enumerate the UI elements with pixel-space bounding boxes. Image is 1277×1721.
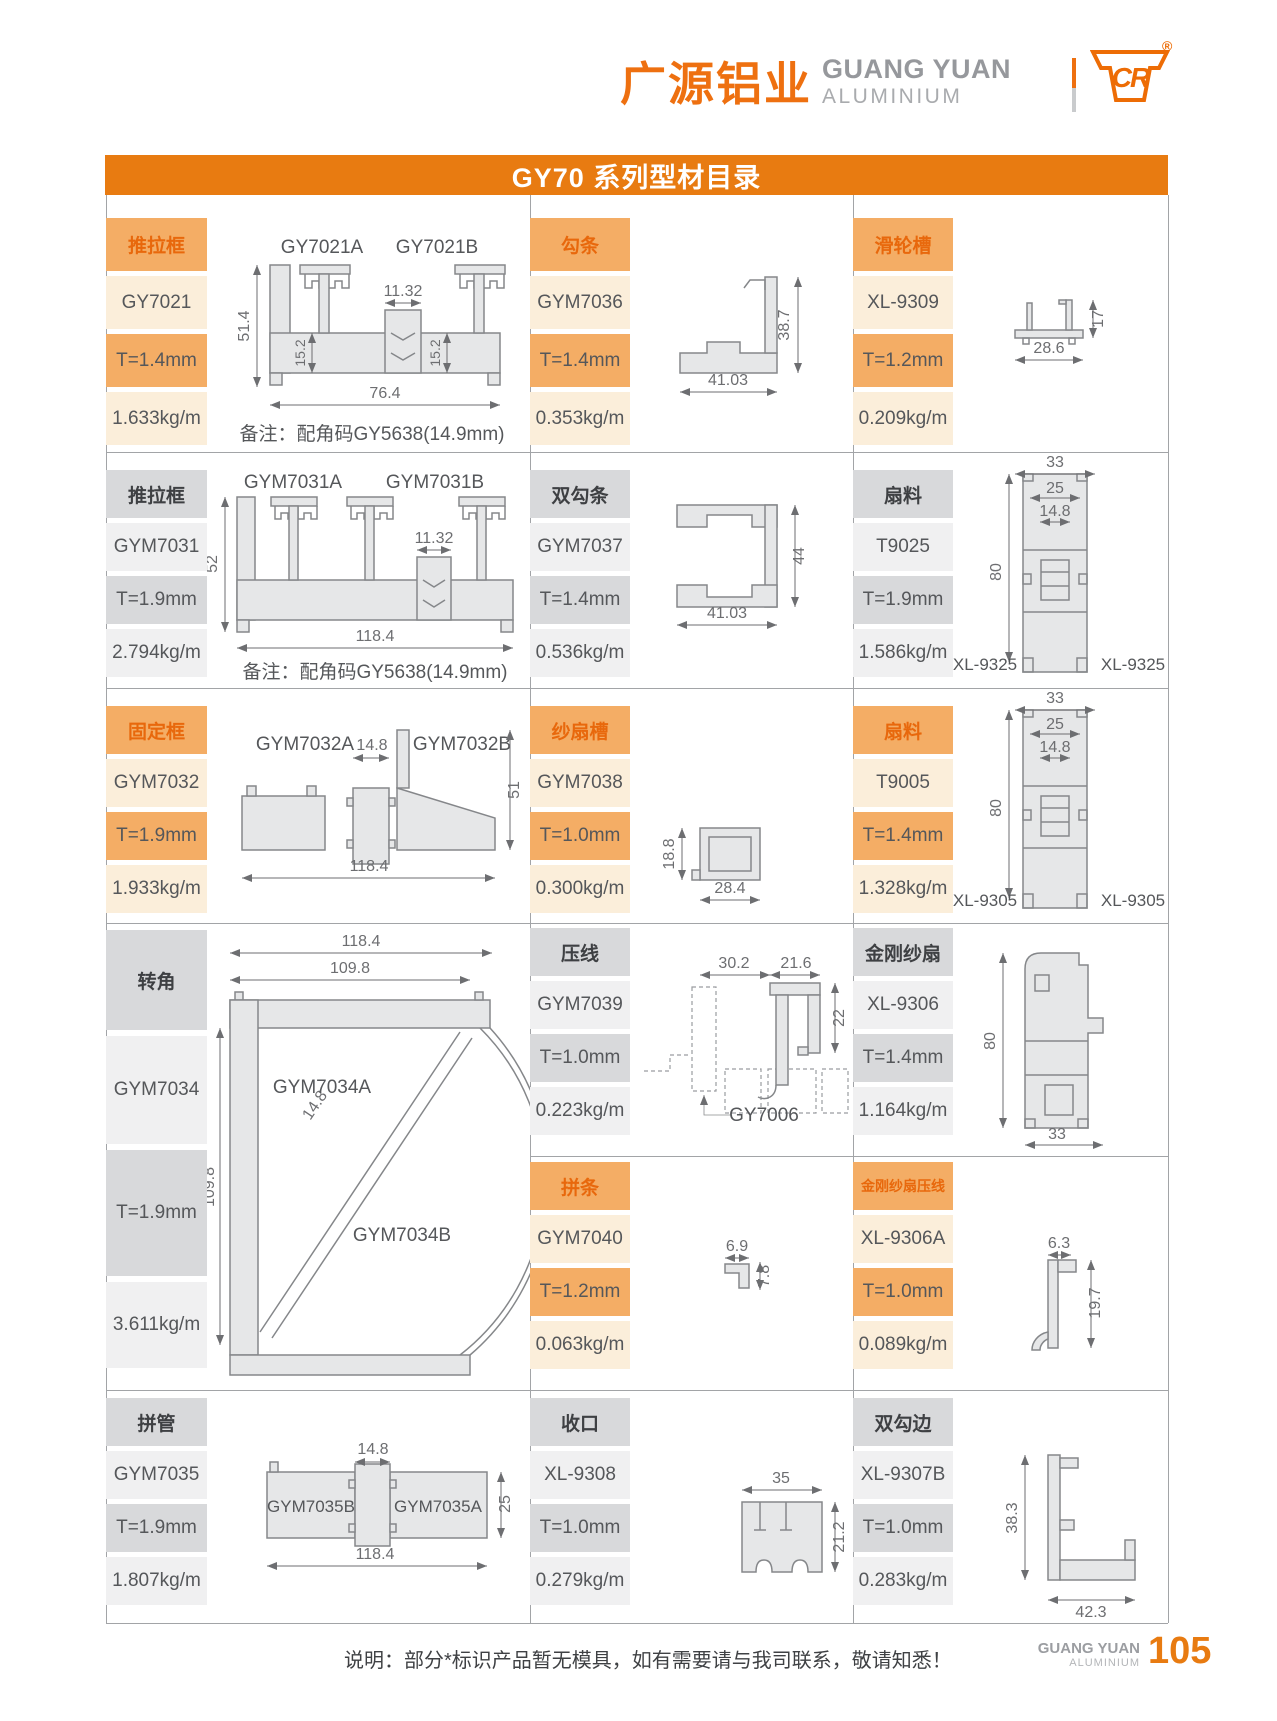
profile-shape (680, 277, 777, 373)
weight-cell: 0.353kg/m (530, 392, 630, 445)
profile-shape (758, 983, 820, 1099)
dim-text: 109.8 (207, 1167, 218, 1207)
product-block-gym7040: 拼条 GYM7040 T=1.2mm 0.063kg/m (530, 1162, 630, 1369)
footer-brand-line2: ALUMINIUM (1010, 1658, 1140, 1669)
profile-shape (230, 992, 530, 1375)
brand-divider (1072, 58, 1076, 112)
model-cell: GYM7040 (530, 1215, 630, 1263)
model-cell: GYM7037 (530, 523, 630, 571)
dim-text: 21.2 (831, 1521, 848, 1552)
dim-text: 7.8 (756, 1265, 773, 1287)
thickness-cell: T=1.2mm (530, 1268, 630, 1316)
weight-cell: 0.283kg/m (853, 1557, 953, 1605)
profile-shape (1032, 1260, 1076, 1350)
dim-text: 28.6 (1033, 340, 1064, 357)
product-block-gym7036: 勾条 GYM7036 T=1.4mm 0.353kg/m (530, 218, 630, 445)
drawing-t9005: 33 25 14.8 80 XL-9305 XL-9305 (953, 688, 1168, 923)
side-profile-label: XL-9325 (1101, 655, 1165, 674)
product-block-xl9306a: 金刚纱扇压线 XL-9306A T=1.0mm 0.089kg/m (853, 1162, 953, 1369)
model-cell: XL-9307B (853, 1451, 953, 1499)
weight-cell: 1.164kg/m (853, 1087, 953, 1135)
dim-text: 118.4 (356, 628, 395, 645)
category-cell: 双勾边 (853, 1398, 953, 1446)
profile-shape (1025, 953, 1103, 1128)
category-cell: 纱扇槽 (530, 706, 630, 754)
drawing-gym7040: 6.9 7.8 (630, 1156, 853, 1390)
drawing-note: 备注：配角码GY5638(14.9mm) (239, 423, 504, 445)
dim-text: 14.8 (356, 737, 387, 754)
drawing-gym7039: 30.2 21.6 22 GY7006 (630, 923, 853, 1156)
thickness-cell: T=1.0mm (530, 1034, 630, 1082)
category-cell: 勾条 (530, 218, 630, 271)
reference-label: GY7006 (729, 1105, 799, 1126)
profile-shape (1015, 300, 1083, 344)
product-block-gym7032: 固定框 GYM7032 T=1.9mm 1.933kg/m (106, 706, 207, 913)
model-cell: GYM7034 (106, 1036, 207, 1144)
product-block-gym7037: 双勾条 GYM7037 T=1.4mm 0.536kg/m (530, 470, 630, 677)
grid-line (1168, 195, 1169, 1623)
thickness-cell: T=1.0mm (530, 812, 630, 860)
dim-text: 25 (1046, 716, 1064, 733)
product-block-gym7038: 纱扇槽 GYM7038 T=1.0mm 0.300kg/m (530, 706, 630, 913)
profile-label: GYM7032B (413, 734, 511, 755)
dim-text: 11.32 (384, 283, 423, 300)
category-cell: 收口 (530, 1398, 630, 1446)
product-block-xl9306: 金刚纱扇 XL-9306 T=1.4mm 1.164kg/m (853, 928, 953, 1135)
weight-cell: 1.586kg/m (853, 629, 953, 677)
page-number: 105 (1148, 1630, 1211, 1673)
dim-text: 6.9 (726, 1238, 748, 1255)
thickness-cell: T=1.9mm (106, 812, 207, 860)
weight-cell: 0.279kg/m (530, 1557, 630, 1605)
weight-cell: 0.536kg/m (530, 629, 630, 677)
dim-text: 14.8 (1039, 503, 1070, 520)
profile-shape (237, 497, 513, 632)
model-cell: XL-9308 (530, 1451, 630, 1499)
product-block-t9005: 扇料 T9005 T=1.4mm 1.328kg/m (853, 706, 953, 913)
thickness-cell: T=1.4mm (530, 334, 630, 387)
dim-text: 80 (982, 1032, 999, 1050)
drawing-xl9307b: 38.3 42.3 (953, 1390, 1168, 1623)
thickness-cell: T=1.9mm (106, 1504, 207, 1552)
side-profile-label: XL-9305 (1101, 891, 1165, 910)
weight-cell: 1.933kg/m (106, 865, 207, 913)
brand-chinese-name: 广源铝业 (620, 48, 812, 114)
weight-cell: 0.209kg/m (853, 392, 953, 445)
dim-text: 118.4 (356, 1546, 395, 1563)
product-block-gym7031: 推拉框 GYM7031 T=1.9mm 2.794kg/m (106, 470, 207, 677)
dim-text: 11.32 (415, 530, 454, 547)
product-block-gym7035: 拼管 GYM7035 T=1.9mm 1.807kg/m (106, 1398, 207, 1605)
weight-cell: 0.063kg/m (530, 1321, 630, 1369)
side-profile-label: XL-9325 (953, 655, 1017, 674)
model-cell: GYM7035 (106, 1451, 207, 1499)
dim-text: 33 (1046, 690, 1064, 707)
cr-logo-text: CR (1112, 62, 1151, 93)
dim-text: 14.8 (1039, 739, 1070, 756)
product-block-xl9309: 滑轮槽 XL-9309 T=1.2mm 0.209kg/m (853, 218, 953, 445)
cr-logo-icon: CR (1090, 46, 1170, 106)
product-block-t9025: 扇料 T9025 T=1.9mm 1.586kg/m (853, 470, 953, 677)
drawing-gym7035: 14.8 GYM7035B GYM7035A 25 118.4 (207, 1390, 530, 1623)
dim-text: 52 (207, 555, 221, 573)
dim-text: 28.4 (714, 880, 745, 897)
profile-label: GYM7035B (267, 1497, 355, 1516)
dim-text: 25 (497, 1495, 514, 1513)
side-profile-label: XL-9305 (953, 891, 1017, 910)
dim-text: 51.4 (236, 310, 253, 341)
weight-cell: 0.223kg/m (530, 1087, 630, 1135)
grid-line (106, 1623, 1168, 1624)
category-cell: 金刚纱扇压线 (853, 1162, 953, 1210)
thickness-cell: T=1.0mm (530, 1504, 630, 1552)
weight-cell: 0.300kg/m (530, 865, 630, 913)
footer-brand: GUANG YUAN ALUMINIUM (1010, 1641, 1140, 1669)
profile-shape (1048, 1455, 1135, 1580)
category-cell: 扇料 (853, 706, 953, 754)
model-cell: XL-9309 (853, 276, 953, 329)
dim-text: 15.2 (292, 339, 308, 366)
dim-text: 35 (772, 1470, 790, 1487)
category-cell: 转角 (106, 930, 207, 1030)
dim-text: 17 (1090, 310, 1107, 328)
profile-label: GY7021B (396, 237, 478, 258)
brand-en-line1: GUANG YUAN (822, 56, 1011, 83)
dim-text: 15.2 (427, 339, 443, 366)
thickness-cell: T=1.9mm (853, 576, 953, 624)
dim-text: 41.03 (707, 605, 747, 622)
profile-label: GYM7034B (353, 1225, 451, 1246)
thickness-cell: T=1.4mm (106, 334, 207, 387)
category-cell: 拼条 (530, 1162, 630, 1210)
footer-note: 说明：部分*标识产品暂无模具，如有需要请与我司联系，敬请知悉！ (344, 1644, 952, 1673)
model-cell: GYM7038 (530, 759, 630, 807)
footer-brand-line1: GUANG YUAN (1010, 1641, 1140, 1656)
profile-label: GY7021A (281, 237, 364, 258)
dim-text: 44 (791, 547, 808, 565)
drawing-gym7036: 38.7 41.03 (630, 195, 853, 452)
category-cell: 固定框 (106, 706, 207, 754)
dim-text: 21.6 (780, 955, 811, 972)
profile-label: GYM7032A (256, 734, 355, 755)
drawing-gy7021: GY7021A GY7021B 51.4 11.32 15.2 15.2 76.… (207, 195, 530, 452)
dim-text: 19.7 (1087, 1287, 1104, 1318)
drawing-gym7032: GYM7032A 14.8 GYM7032B 51 118.4 (207, 688, 530, 923)
thickness-cell: T=1.4mm (530, 576, 630, 624)
series-title-bar: GY70 系列型材目录 (105, 155, 1168, 195)
model-cell: GY7021 (106, 276, 207, 329)
drawing-gym7037: 44 41.03 (630, 452, 853, 688)
category-cell: 扇料 (853, 470, 953, 518)
profile-shape (692, 828, 760, 880)
dim-text: 14.8 (357, 1441, 388, 1458)
drawing-t9025: 33 25 14.8 80 XL-9325 XL-9325 (953, 452, 1168, 688)
weight-cell: 1.807kg/m (106, 1557, 207, 1605)
weight-cell: 1.633kg/m (106, 392, 207, 445)
drawing-note: 备注：配角码GY5638(14.9mm) (242, 661, 507, 683)
brand-en-line2: ALUMINIUM (822, 86, 1011, 107)
profile-label: GYM7035A (394, 1497, 483, 1516)
dim-text: 33 (1048, 1126, 1066, 1143)
drawing-gym7034: 118.4 109.8 109.8 14.8 GYM7034A GYM7034B (207, 923, 530, 1390)
dim-text: 80 (988, 799, 1005, 817)
thickness-cell: T=1.9mm (106, 1150, 207, 1276)
profile-shape (677, 505, 777, 607)
dim-text: 76.4 (369, 385, 400, 402)
drawing-xl9308: 35 21.2 (630, 1390, 853, 1623)
thickness-cell: T=1.4mm (853, 1034, 953, 1082)
dim-text: 80 (988, 563, 1005, 581)
category-cell: 滑轮槽 (853, 218, 953, 271)
model-cell: XL-9306 (853, 981, 953, 1029)
dim-text: 118.4 (342, 933, 381, 950)
weight-cell: 1.328kg/m (853, 865, 953, 913)
dim-text: 51 (506, 781, 523, 799)
product-block-gym7034: 转角 GYM7034 T=1.9mm 3.611kg/m (106, 930, 207, 1368)
registered-trademark: ® (1162, 38, 1172, 54)
product-block-gy7021: 推拉框 GY7021 T=1.4mm 1.633kg/m (106, 218, 207, 445)
profile-shape (742, 1502, 822, 1572)
category-cell: 金刚纱扇 (853, 928, 953, 976)
product-block-gym7039: 压线 GYM7039 T=1.0mm 0.223kg/m (530, 928, 630, 1135)
model-cell: T9025 (853, 523, 953, 571)
category-cell: 拼管 (106, 1398, 207, 1446)
dim-text: 41.03 (708, 372, 748, 389)
thickness-cell: T=1.4mm (853, 812, 953, 860)
profile-shape (725, 1264, 749, 1288)
dim-text: 118.4 (350, 858, 389, 875)
dim-text: 109.8 (330, 960, 370, 977)
category-cell: 推拉框 (106, 470, 207, 518)
dim-text: 33 (1046, 454, 1064, 471)
drawing-gym7031: GYM7031A GYM7031B 52 11.32 118.4 备注：配角码G… (207, 452, 530, 688)
dim-text: 30.2 (718, 955, 749, 972)
dim-text: 38.3 (1004, 1502, 1021, 1533)
dim-text: 25 (1046, 480, 1064, 497)
thickness-cell: T=1.2mm (853, 334, 953, 387)
model-cell: GYM7032 (106, 759, 207, 807)
product-block-xl9308: 收口 XL-9308 T=1.0mm 0.279kg/m (530, 1398, 630, 1605)
category-cell: 压线 (530, 928, 630, 976)
drawing-gym7038: 18.8 28.4 (630, 688, 853, 923)
dim-text: 42.3 (1075, 1604, 1106, 1621)
model-cell: GYM7031 (106, 523, 207, 571)
dim-text: 38.7 (776, 309, 793, 340)
thickness-cell: T=1.9mm (106, 576, 207, 624)
product-block-xl9307b: 双勾边 XL-9307B T=1.0mm 0.283kg/m (853, 1398, 953, 1605)
drawing-xl9306a: 6.3 19.7 (953, 1156, 1168, 1390)
dim-text: 22 (831, 1009, 848, 1027)
weight-cell: 3.611kg/m (106, 1282, 207, 1368)
thickness-cell: T=1.0mm (853, 1504, 953, 1552)
drawing-xl9306: 80 33 (953, 923, 1168, 1156)
model-cell: XL-9306A (853, 1215, 953, 1263)
dim-text: 6.3 (1048, 1235, 1070, 1252)
profile-label: GYM7034A (273, 1077, 372, 1098)
dim-text: 18.8 (661, 838, 678, 869)
thickness-cell: T=1.0mm (853, 1268, 953, 1316)
category-cell: 双勾条 (530, 470, 630, 518)
model-cell: GYM7036 (530, 276, 630, 329)
weight-cell: 0.089kg/m (853, 1321, 953, 1369)
brand-english-name: GUANG YUAN ALUMINIUM (822, 56, 1011, 107)
model-cell: GYM7039 (530, 981, 630, 1029)
profile-label: GYM7031B (386, 472, 484, 493)
catalog-page: 广源铝业 GUANG YUAN ALUMINIUM CR ® GY70 系列型材… (0, 0, 1277, 1721)
category-cell: 推拉框 (106, 218, 207, 271)
drawing-xl9309: 17 28.6 (953, 195, 1168, 452)
profile-label: GYM7031A (244, 472, 343, 493)
model-cell: T9005 (853, 759, 953, 807)
weight-cell: 2.794kg/m (106, 629, 207, 677)
